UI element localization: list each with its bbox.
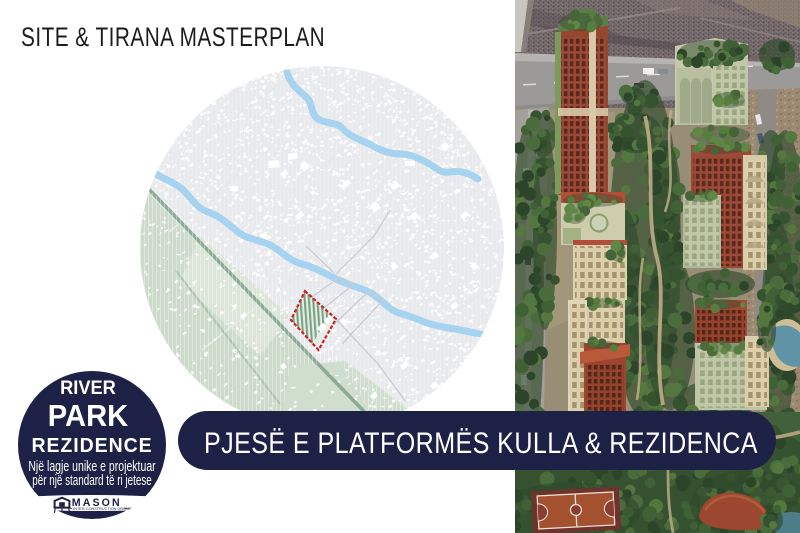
svg-text:INTER-CONSTRUCTION GROUP: INTER-CONSTRUCTION GROUP <box>73 507 132 511</box>
